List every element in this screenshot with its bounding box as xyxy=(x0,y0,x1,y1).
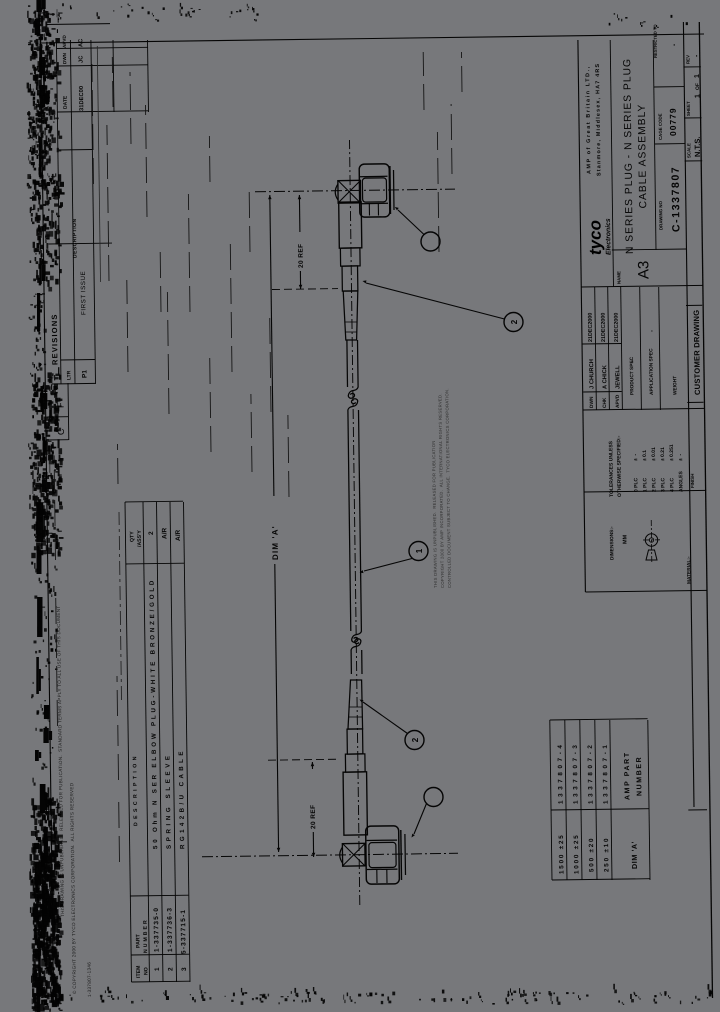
svg-text:DIM 'A': DIM 'A' xyxy=(630,841,639,869)
svg-text:1-337736-3: 1-337736-3 xyxy=(166,907,174,952)
svg-text:NUMBER: NUMBER xyxy=(143,918,149,953)
svg-text:CUSTOMER DRAWING: CUSTOMER DRAWING xyxy=(692,310,702,395)
svg-text:Electronics: Electronics xyxy=(605,218,612,255)
svg-text:NAME: NAME xyxy=(616,271,621,284)
svg-text:20 REF: 20 REF xyxy=(310,805,317,830)
svg-text:N.T.S.: N.T.S. xyxy=(693,137,702,158)
svg-text:DWN: DWN xyxy=(62,52,67,64)
svg-text:5-337715-1: 5-337715-1 xyxy=(180,909,188,954)
svg-text:1000 ±25: 1000 ±25 xyxy=(573,833,581,874)
svg-text:AC: AC xyxy=(78,38,84,47)
svg-text:2 PLC: 2 PLC xyxy=(651,477,657,492)
svg-text:± 0.01: ± 0.01 xyxy=(651,447,657,461)
svg-text:MM: MM xyxy=(622,534,628,544)
svg-text:31DEC00: 31DEC00 xyxy=(79,86,85,111)
svg-text:tyco: tyco xyxy=(586,220,605,255)
svg-text:RG142B/U CABLE: RG142B/U CABLE xyxy=(178,748,186,849)
svg-text:A/R: A/R xyxy=(161,527,168,539)
svg-text:WEIGHT: WEIGHT xyxy=(672,376,678,395)
svg-text:SPRING SLEEVE: SPRING SLEEVE xyxy=(164,752,172,849)
svg-text:2: 2 xyxy=(510,319,519,324)
svg-text:CHK: CHK xyxy=(602,397,608,408)
svg-text:OTHERWISE SPECIFIED:-: OTHERWISE SPECIFIED:- xyxy=(616,435,623,497)
svg-text:/ASS'Y: /ASS'Y xyxy=(137,530,143,547)
svg-text:1337807-4: 1337807-4 xyxy=(557,741,565,804)
svg-text:RESTRICTED TO: RESTRICTED TO xyxy=(653,24,658,58)
svg-text:2: 2 xyxy=(167,967,174,971)
svg-text:3 PLC: 3 PLC xyxy=(660,477,666,492)
svg-text:-: - xyxy=(649,330,655,332)
svg-text:JEWELL: JEWELL xyxy=(615,365,621,389)
svg-text:± -: ± - xyxy=(633,453,639,461)
svg-text:250 ±10: 250 ±10 xyxy=(603,837,610,872)
svg-text:NUMBER: NUMBER xyxy=(636,756,644,796)
svg-text:JC: JC xyxy=(78,55,84,63)
svg-text:FINISH: FINISH xyxy=(690,474,695,488)
svg-text:A3: A3 xyxy=(635,261,652,280)
svg-text:4 PLC: 4 PLC xyxy=(669,477,675,492)
svg-text:DATE: DATE xyxy=(63,95,69,109)
svg-text:APPLICATION SPEC: APPLICATION SPEC xyxy=(648,348,655,395)
svg-text:QTY: QTY xyxy=(129,531,135,542)
svg-text:DRAWING NO: DRAWING NO xyxy=(658,200,663,230)
svg-text:NO: NO xyxy=(143,967,149,975)
svg-text:CABLE ASSEMBLY: CABLE ASSEMBLY xyxy=(637,104,649,209)
svg-text:REV: REV xyxy=(685,55,690,64)
svg-text:PART: PART xyxy=(135,933,141,948)
svg-text:1-337807-1346: 1-337807-1346 xyxy=(87,962,92,997)
svg-text:1500 ±25: 1500 ±25 xyxy=(558,833,566,874)
svg-text:SCALE: SCALE xyxy=(686,143,691,158)
svg-text:LTR: LTR xyxy=(66,370,72,380)
svg-text:OF: OF xyxy=(695,83,701,90)
svg-text:FIRST ISSUE: FIRST ISSUE xyxy=(80,271,88,315)
svg-text:APVD: APVD xyxy=(615,394,621,408)
svg-text:A/R: A/R xyxy=(175,529,182,541)
svg-text:A CHICK: A CHICK xyxy=(602,364,608,389)
svg-text:20 REF: 20 REF xyxy=(298,244,305,269)
svg-text:21DEC2000: 21DEC2000 xyxy=(614,313,620,342)
svg-text:DIM 'A': DIM 'A' xyxy=(271,525,280,560)
svg-text:TOLERANCES UNLESS: TOLERANCES UNLESS xyxy=(608,440,615,497)
svg-text:1: 1 xyxy=(694,74,701,78)
svg-text:21DEC2000: 21DEC2000 xyxy=(588,313,594,342)
svg-text:C: C xyxy=(56,428,66,435)
svg-text:C-1337807: C-1337807 xyxy=(670,166,683,233)
svg-text:500 ±20: 500 ±20 xyxy=(588,837,595,872)
svg-text:AMP PART: AMP PART xyxy=(624,751,632,800)
svg-text:3: 3 xyxy=(181,967,188,971)
svg-text:SHEET: SHEET xyxy=(686,101,691,116)
svg-text:21DEC2000: 21DEC2000 xyxy=(601,313,607,342)
svg-text:ITEM: ITEM xyxy=(136,966,142,978)
svg-text:± 0.1: ± 0.1 xyxy=(642,450,648,461)
svg-text:REVISIONS: REVISIONS xyxy=(50,313,60,365)
svg-text:MATERIAL:-: MATERIAL:- xyxy=(686,556,692,584)
svg-text:1: 1 xyxy=(415,548,424,553)
svg-text:1337807-1: 1337807-1 xyxy=(602,741,610,804)
svg-text:1337807-3: 1337807-3 xyxy=(572,741,580,804)
svg-text:DESCRIPTION: DESCRIPTION xyxy=(72,218,79,258)
svg-text:1-337735-0: 1-337735-0 xyxy=(153,907,161,952)
svg-text:± 0.251: ± 0.251 xyxy=(669,444,675,461)
svg-text:F: F xyxy=(56,402,66,408)
svg-text:1 PLC: 1 PLC xyxy=(642,477,648,492)
svg-text:00779: 00779 xyxy=(668,107,678,136)
svg-text:CAGE CODE: CAGE CODE xyxy=(658,113,663,140)
svg-text:2: 2 xyxy=(148,531,155,535)
svg-text:DESCRIPTION: DESCRIPTION xyxy=(132,753,139,826)
svg-text:1: 1 xyxy=(694,94,701,98)
svg-text:ANGLES: ANGLES xyxy=(678,470,684,492)
svg-text:± -: ± - xyxy=(678,453,684,461)
svg-text:± 0.21: ± 0.21 xyxy=(660,447,666,461)
svg-text:-: - xyxy=(630,360,636,362)
svg-text:P1: P1 xyxy=(81,370,88,378)
svg-text:2: 2 xyxy=(411,737,420,742)
svg-text:1337807-2: 1337807-2 xyxy=(587,741,595,804)
svg-text:APVD: APVD xyxy=(62,35,67,49)
svg-text:0 PLC: 0 PLC xyxy=(633,477,639,492)
svg-text:DIMENSIONS:-: DIMENSIONS:- xyxy=(609,526,615,560)
svg-text:DWN: DWN xyxy=(589,396,595,408)
svg-text:J CHURCH: J CHURCH xyxy=(589,359,595,389)
svg-text:1: 1 xyxy=(154,967,161,971)
